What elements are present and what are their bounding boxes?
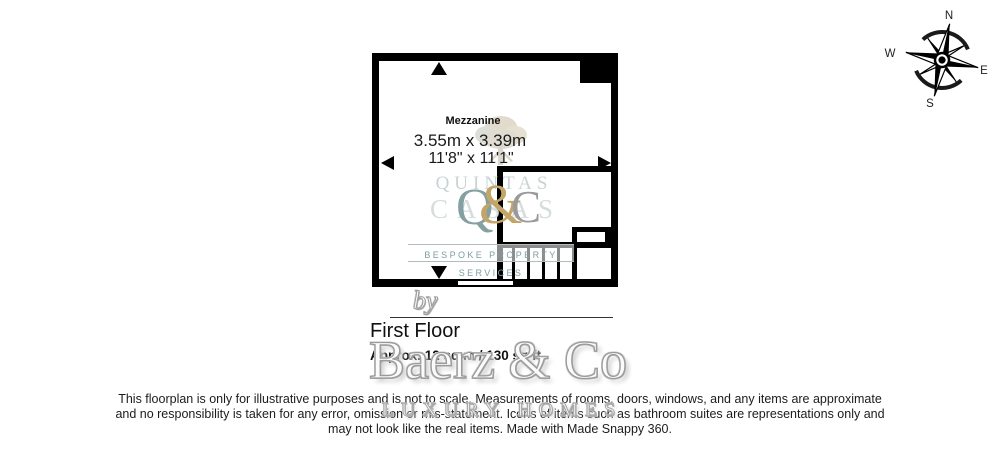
room-size-metric: 3.55m x 3.39m: [414, 131, 526, 151]
wall-left: [372, 53, 379, 287]
arrow-left-icon: [381, 156, 394, 170]
wall-corner-block: [580, 53, 618, 83]
room-name-label: Mezzanine: [445, 115, 500, 127]
watermark-monogram-c: C: [511, 185, 541, 230]
watermark-brand-tagline: LUXURY HOMES: [382, 399, 623, 422]
disclaimer-line-3: may not look like the real items. Made w…: [0, 422, 1000, 437]
title-separator-line: [390, 317, 613, 318]
compass-west-label: W: [885, 48, 896, 60]
arrow-down-icon: [431, 266, 447, 279]
compass-south-label: S: [926, 98, 934, 110]
arrow-up-icon: [431, 62, 447, 75]
watermark-by-text: by: [413, 286, 438, 316]
alcove-step: [572, 227, 611, 242]
arrow-right-icon: [598, 156, 611, 170]
compass-rose-icon: N E S W: [876, 2, 1000, 118]
floorplan-page: Mezzanine 3.55m x 3.39m 11'8" x 11'1" QU…: [0, 0, 1000, 454]
compass-east-label: E: [980, 65, 988, 77]
compass-north-label: N: [945, 10, 953, 22]
watermark-brand-text: Baerz & Co: [369, 329, 627, 391]
watermark-tagline-band: BESPOKE PROPERTY SERVICES: [408, 244, 574, 262]
room-size-imperial: 11'8" x 11'1": [428, 150, 513, 168]
floorplan-drawing: Mezzanine 3.55m x 3.39m 11'8" x 11'1" QU…: [372, 53, 618, 287]
